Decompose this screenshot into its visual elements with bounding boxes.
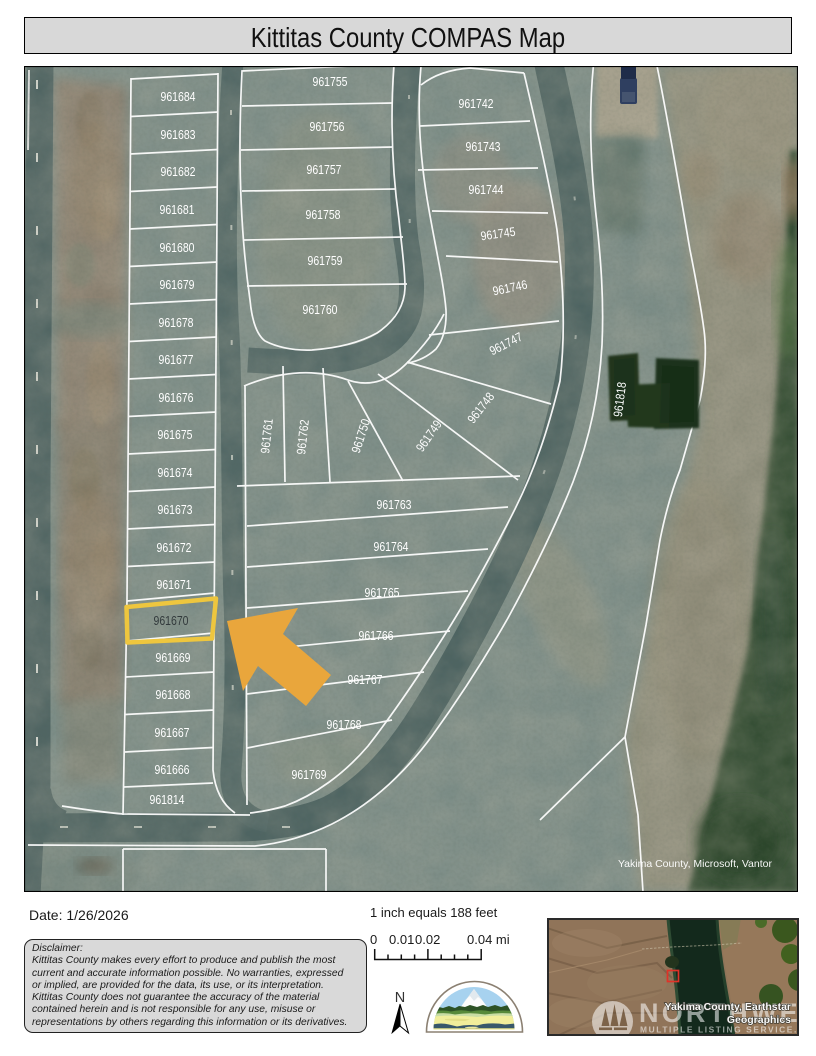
svg-text:961769: 961769 (292, 768, 327, 782)
svg-text:961767: 961767 (348, 673, 383, 687)
svg-text:961757: 961757 (307, 163, 342, 177)
svg-text:961683: 961683 (161, 128, 196, 142)
svg-text:961666: 961666 (155, 763, 190, 777)
svg-text:961742: 961742 (459, 97, 494, 111)
svg-text:961672: 961672 (157, 541, 192, 555)
svg-text:961743: 961743 (466, 140, 501, 154)
svg-text:Geographics: Geographics (727, 1014, 791, 1026)
svg-text:Yakima County, Earthstar: Yakima County, Earthstar (665, 1001, 791, 1013)
svg-text:961679: 961679 (160, 278, 195, 292)
svg-text:961680: 961680 (160, 241, 195, 255)
svg-text:961667: 961667 (155, 726, 190, 740)
svg-text:961668: 961668 (156, 688, 191, 702)
svg-text:961744: 961744 (469, 183, 504, 197)
svg-text:961755: 961755 (313, 75, 348, 89)
svg-text:961765: 961765 (365, 586, 400, 600)
svg-text:961673: 961673 (158, 503, 193, 517)
svg-text:961758: 961758 (306, 208, 341, 222)
svg-text:961763: 961763 (377, 498, 412, 512)
svg-text:961764: 961764 (374, 540, 409, 554)
svg-text:961759: 961759 (308, 254, 343, 268)
svg-text:961681: 961681 (160, 203, 195, 217)
svg-text:961814: 961814 (150, 793, 185, 807)
svg-text:961684: 961684 (161, 90, 196, 104)
svg-text:961670: 961670 (154, 614, 189, 628)
svg-text:MULTIPLE LISTING SERVICE.: MULTIPLE LISTING SERVICE. (640, 1025, 798, 1035)
svg-text:961675: 961675 (158, 428, 193, 442)
svg-text:961676: 961676 (159, 391, 194, 405)
svg-text:961766: 961766 (359, 629, 394, 643)
svg-text:961674: 961674 (158, 466, 193, 480)
svg-text:961756: 961756 (310, 120, 345, 134)
svg-text:Yakima County, Microsoft, Vant: Yakima County, Microsoft, Vantor (618, 858, 773, 870)
svg-text:961669: 961669 (156, 651, 191, 665)
svg-text:961678: 961678 (159, 316, 194, 330)
svg-text:961760: 961760 (303, 303, 338, 317)
svg-text:961682: 961682 (161, 165, 196, 179)
svg-text:961677: 961677 (159, 353, 194, 367)
svg-text:961671: 961671 (157, 578, 192, 592)
svg-text:961768: 961768 (327, 718, 362, 732)
svg-text:N: N (395, 990, 405, 1006)
